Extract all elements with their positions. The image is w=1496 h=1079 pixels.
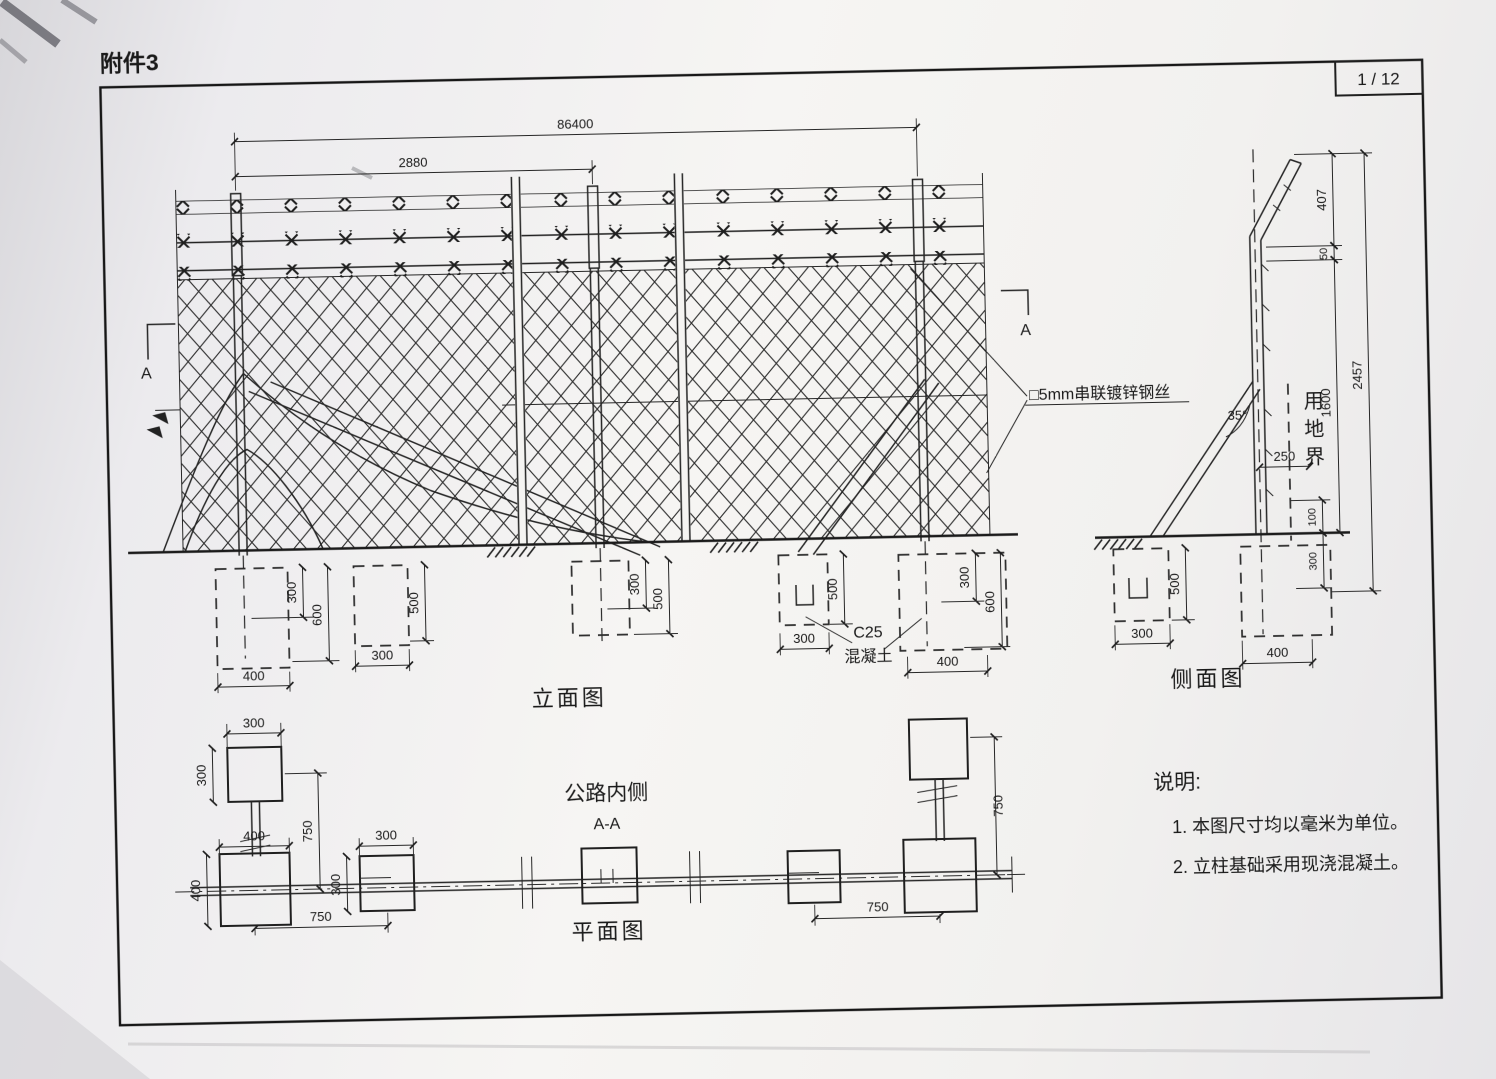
dim-post-spacing: 2880 — [398, 155, 427, 171]
foundation-left-small: 500 300 — [353, 565, 434, 673]
drawing-sheet: 附件3 1 / 12 — [100, 23, 1442, 1025]
section-mark-left: A — [140, 324, 177, 383]
dim-boundary-above: 100 — [1306, 508, 1318, 527]
dim-width: 300 — [1131, 626, 1153, 641]
dim-embed: 300 — [627, 573, 642, 595]
elevation-view: 86400 2880 A A □5mm串联镀锌钢丝 — [119, 104, 1195, 720]
dim-embed: 300 — [957, 566, 972, 588]
dim-width: 400 — [937, 654, 959, 669]
dim-total-height: 2457 — [1349, 361, 1365, 390]
section-letter: A — [141, 365, 152, 382]
dim-small-width: 300 — [375, 827, 397, 842]
plan-left-group: 300 300 750 400 400 300 — [185, 712, 416, 937]
brace-angle: 35° — [1228, 408, 1248, 423]
side-view: 35° 用地界 250 407 50 1600 — [1086, 147, 1383, 694]
dim-depth: 500 — [1167, 573, 1182, 595]
page-number-box: 1 / 12 — [1335, 60, 1423, 96]
dim-top-height: 300 — [194, 764, 209, 786]
foundation-mid: 300 500 — [571, 560, 678, 636]
dim-wire-gap: 50 — [1318, 248, 1330, 260]
plan-title: 平面图 — [571, 918, 647, 945]
dim-offset: 250 — [1273, 449, 1295, 464]
barbed-wire-rows — [176, 184, 984, 281]
dim-base-width: 400 — [243, 828, 265, 843]
side-foundation-left: 500 300 — [1113, 548, 1195, 651]
dim-small-height: 300 — [328, 874, 343, 896]
concrete-callout: C25 混凝土 — [806, 614, 923, 666]
dim-width: 300 — [371, 647, 393, 662]
drawing-canvas: 附件3 1 / 12 — [0, 0, 1496, 1079]
plan-right-group: 750 750 — [785, 718, 1008, 927]
concrete-material: 混凝土 — [844, 647, 892, 666]
dim-arm: 407 — [1314, 189, 1329, 211]
dim-post-height: 1600 — [1318, 388, 1334, 417]
side-brace: 35° — [1147, 381, 1263, 536]
notes-title: 说明: — [1153, 771, 1201, 795]
dim-width: 400 — [243, 668, 265, 683]
dim-depth: 600 — [309, 604, 324, 626]
side-ground-line — [1095, 532, 1350, 537]
foundation-left: 300 600 400 — [215, 567, 340, 694]
attachment-label: 附件3 — [100, 49, 159, 76]
note-item-1: 1. 本图尺寸均以毫米为单位。 — [1172, 812, 1408, 837]
dim-depth: 500 — [825, 578, 840, 600]
section-label: A-A — [593, 816, 620, 834]
section-mark-right: A — [1001, 290, 1032, 340]
dim-embed: 300 — [1307, 552, 1319, 571]
note-item-2: 2. 立柱基础采用现浇混凝土。 — [1173, 852, 1409, 877]
dim-width: 300 — [793, 631, 815, 646]
road-side-label: 公路内侧 — [564, 781, 648, 806]
ground-hatch — [487, 546, 535, 557]
dim-depth: 500 — [650, 588, 665, 610]
foundation-right: 300 600 400 — [898, 553, 1011, 679]
elevation-title: 立面图 — [532, 685, 608, 712]
dim-width: 400 — [1266, 645, 1288, 660]
plan-view: 300 300 750 400 400 300 — [172, 699, 1027, 953]
section-letter: A — [1020, 322, 1031, 339]
dim-depth: 600 — [982, 591, 997, 613]
dim-right-span: 750 — [867, 899, 889, 914]
ground-hatch — [710, 542, 758, 553]
notes-block: 说明: 1. 本图尺寸均以毫米为单位。 2. 立柱基础采用现浇混凝土。 — [1153, 766, 1409, 877]
dim-base-height: 400 — [188, 880, 203, 902]
side-title: 侧面图 — [1170, 666, 1246, 693]
dim-top-width: 300 — [243, 715, 265, 730]
dim-left-spacing: 750 — [300, 820, 315, 842]
dim-embed: 300 — [284, 582, 299, 604]
dim-total-length: 86400 — [557, 116, 593, 132]
foundation-right-small: 500 300 — [778, 554, 853, 656]
dim-depth: 500 — [406, 592, 421, 614]
dim-bottom-span: 750 — [310, 909, 332, 924]
top-dimensions: 86400 2880 — [234, 109, 917, 191]
plan-center-group: 公路内侧 A-A 平面图 — [564, 781, 651, 945]
plan-fence-line — [175, 844, 1026, 916]
page-number: 1 / 12 — [1357, 69, 1400, 89]
chain-link-mesh — [177, 263, 990, 552]
wire-label: □5mm串联镀锌钢丝 — [1029, 383, 1171, 404]
dim-right-spacing: 750 — [990, 795, 1005, 817]
concrete-grade: C25 — [853, 624, 883, 642]
scanned-drawing-photo: 附件3 1 / 12 — [0, 0, 1496, 1079]
side-height-dimensions: 407 50 1600 2457 100 300 — [1264, 153, 1381, 593]
